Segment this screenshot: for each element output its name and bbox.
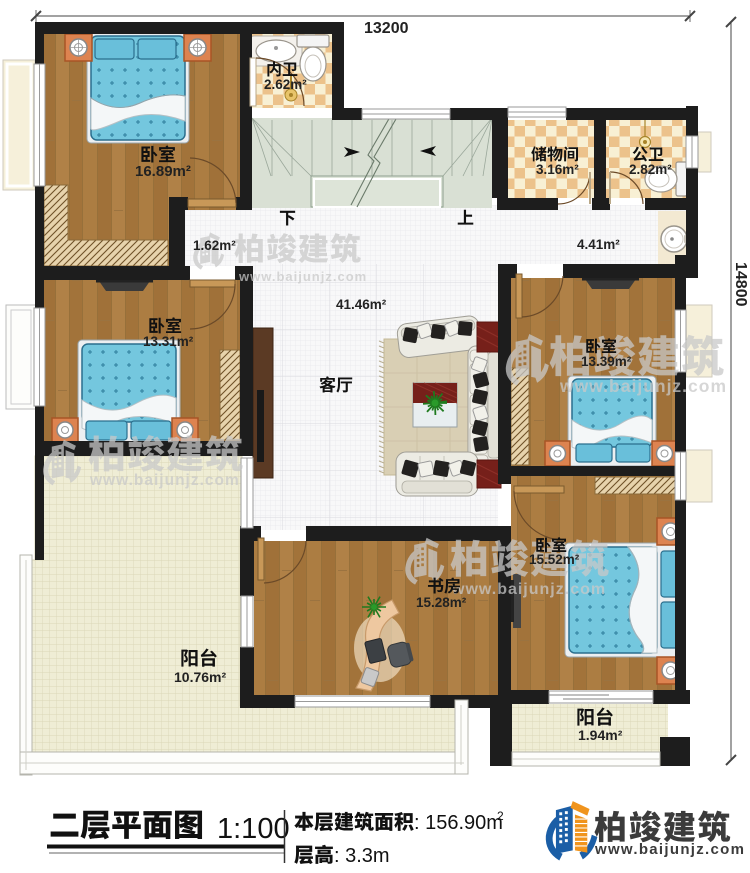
svg-text:1.94m²: 1.94m²	[578, 727, 623, 743]
svg-text:www.baijunjz.com: www.baijunjz.com	[451, 581, 606, 598]
svg-text:1:100: 1:100	[217, 813, 290, 845]
svg-text:1.62m²: 1.62m²	[193, 238, 236, 253]
svg-text:41.46m²: 41.46m²	[336, 297, 387, 312]
svg-text:4.41m²: 4.41m²	[577, 237, 620, 252]
svg-text:3.16m²: 3.16m²	[536, 162, 579, 177]
svg-text:10.76m²: 10.76m²	[174, 669, 226, 685]
svg-text:2.62m²: 2.62m²	[264, 77, 307, 92]
svg-text:2: 2	[497, 809, 504, 823]
svg-text:2.82m²: 2.82m²	[629, 162, 672, 177]
svg-text:15.52m²: 15.52m²	[529, 552, 580, 567]
svg-text:16.89m²: 16.89m²	[135, 163, 191, 180]
svg-text:13.31m²: 13.31m²	[143, 334, 194, 349]
svg-text:15.28m²: 15.28m²	[416, 595, 467, 610]
svg-text:: 3.3m: : 3.3m	[334, 845, 390, 867]
svg-text:www.baijunjz.com: www.baijunjz.com	[238, 269, 367, 284]
svg-text:www.baijunjz.com: www.baijunjz.com	[559, 376, 727, 396]
svg-text:13.39m²: 13.39m²	[581, 354, 632, 369]
svg-text:www.baijunjz.com: www.baijunjz.com	[89, 472, 240, 489]
svg-text:: 156.90m: : 156.90m	[414, 812, 503, 834]
svg-text:13200: 13200	[364, 20, 409, 37]
svg-text:www.baijunjz.com: www.baijunjz.com	[594, 841, 745, 858]
svg-text:14800: 14800	[732, 262, 749, 307]
